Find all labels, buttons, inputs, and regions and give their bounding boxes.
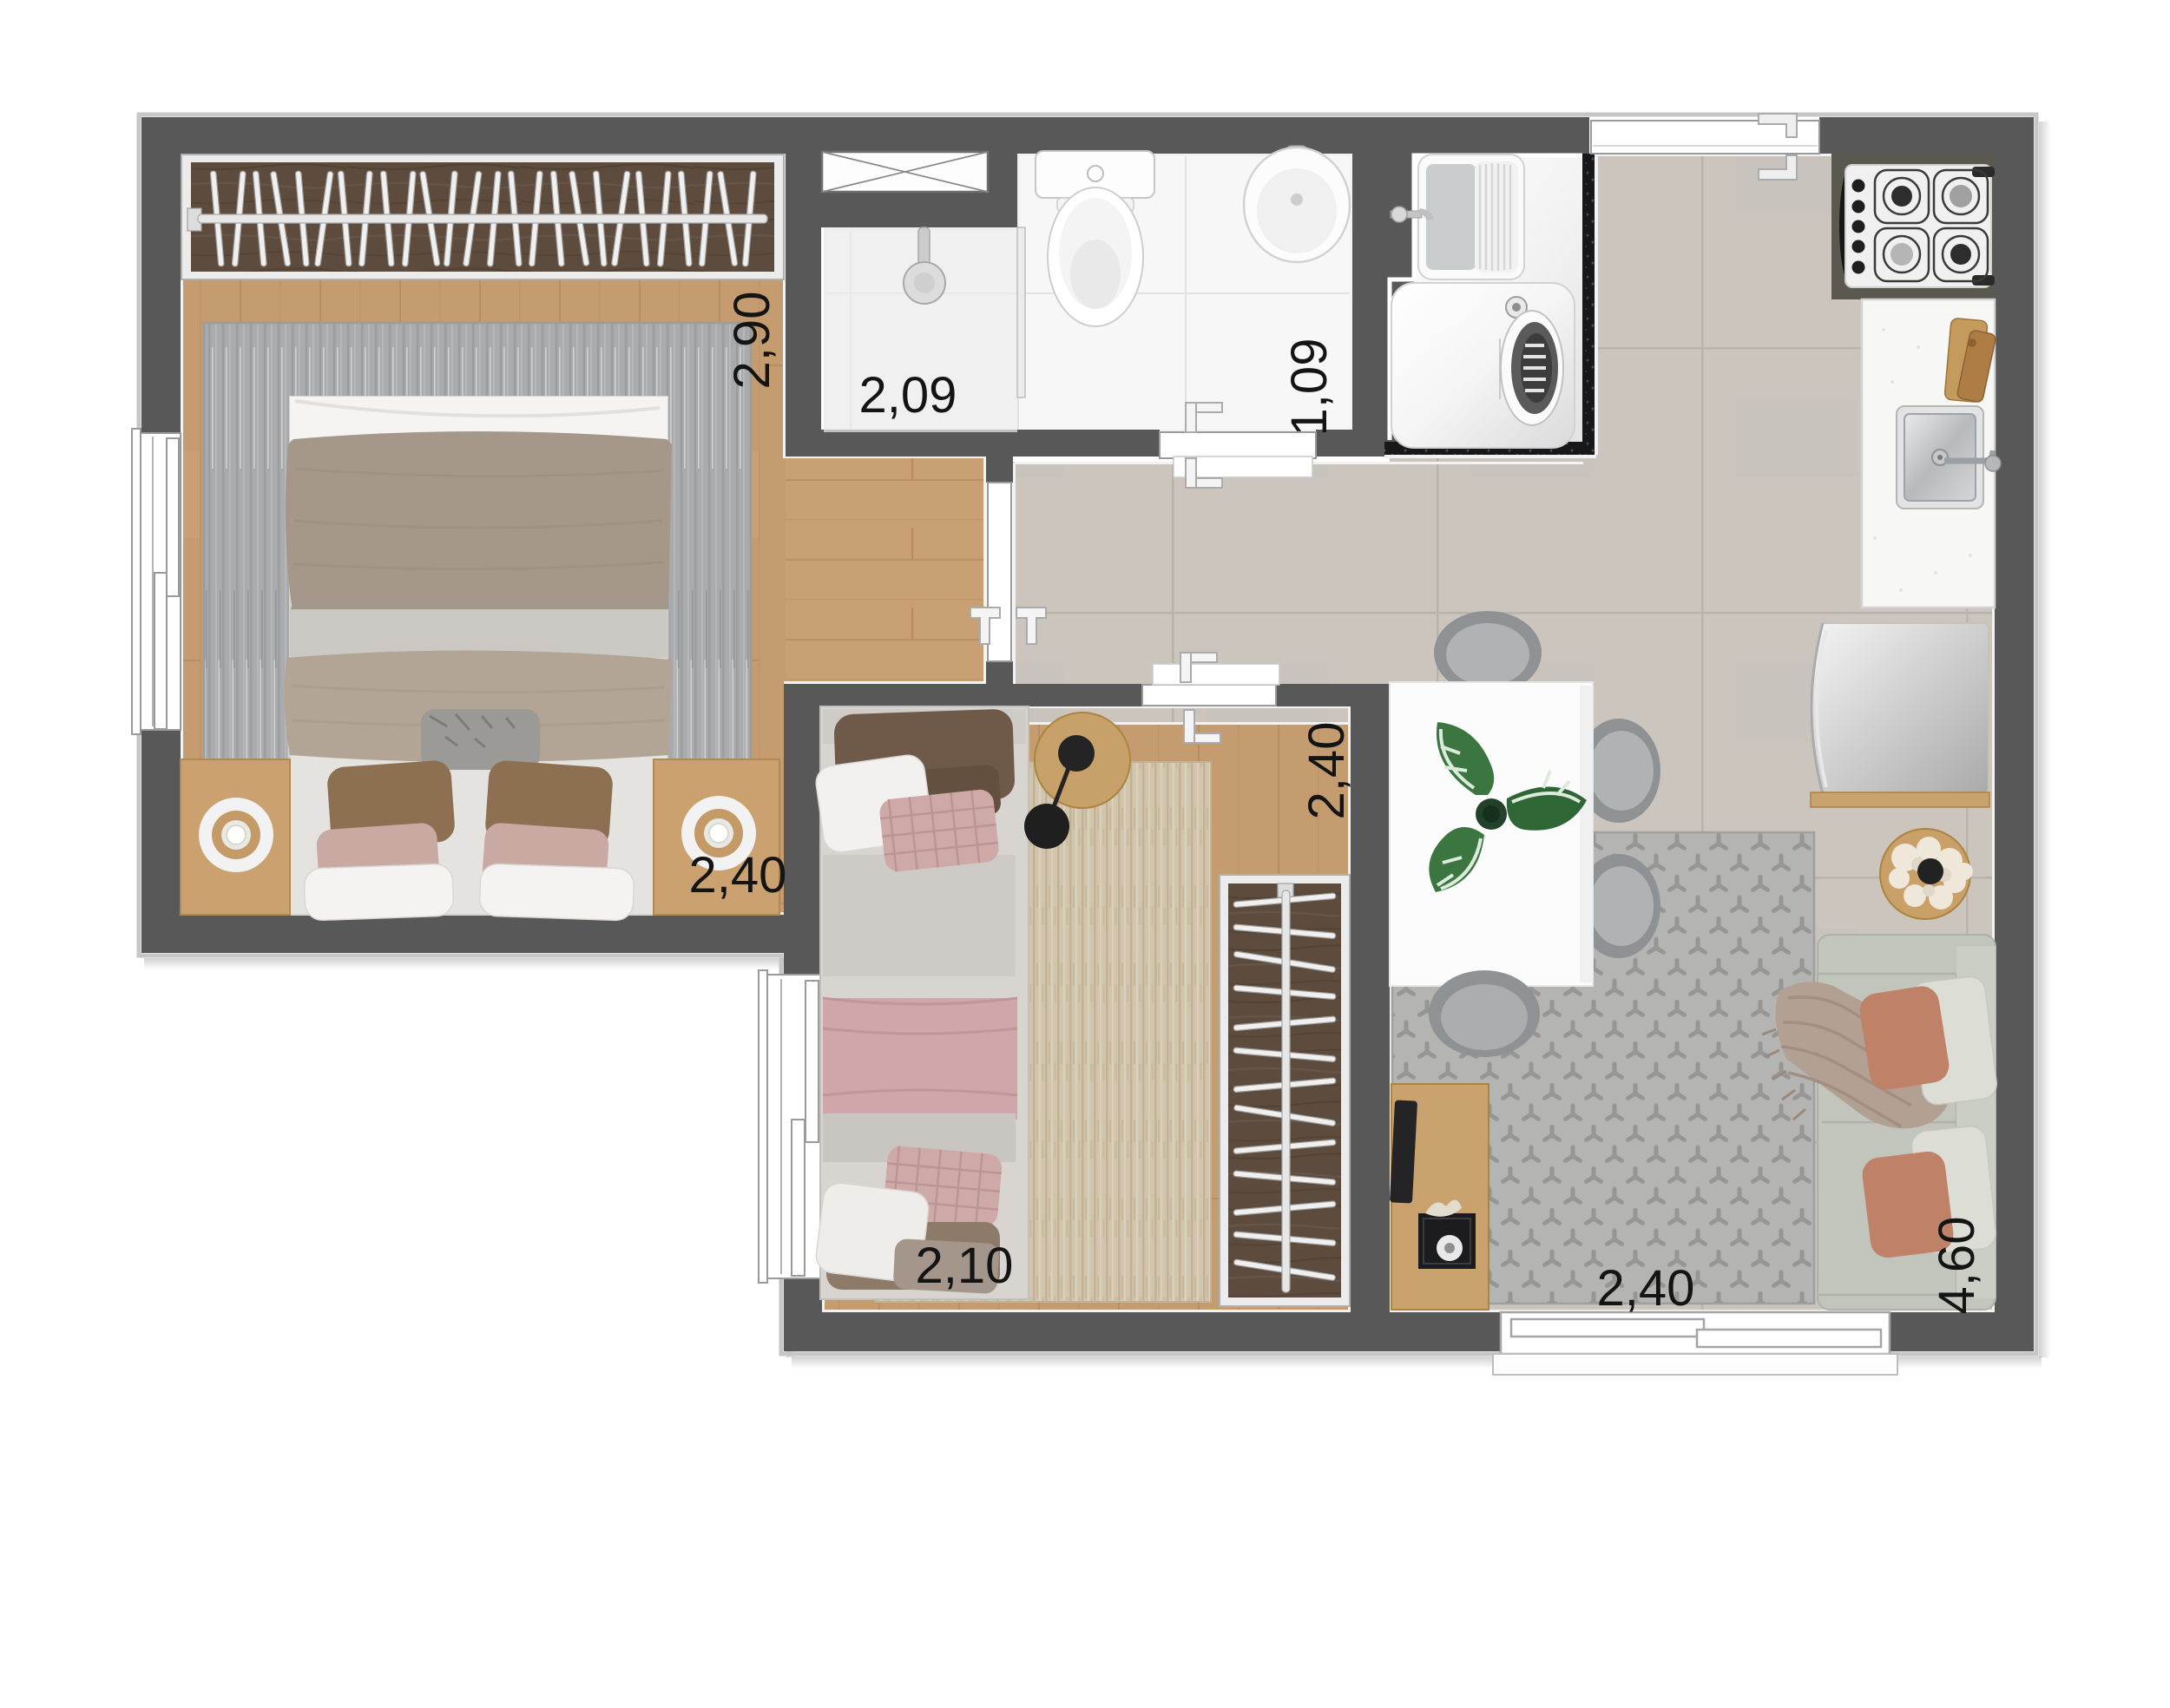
svg-text:2,90: 2,90 [724,292,780,390]
svg-text:2,40: 2,40 [1299,722,1355,820]
svg-text:2,10: 2,10 [916,1238,1014,1294]
svg-text:2,40: 2,40 [1597,1260,1695,1317]
svg-text:2,09: 2,09 [859,367,957,424]
svg-text:1,09: 1,09 [1281,338,1338,437]
svg-text:2,40: 2,40 [689,847,787,903]
svg-text:4,60: 4,60 [1929,1217,1985,1315]
